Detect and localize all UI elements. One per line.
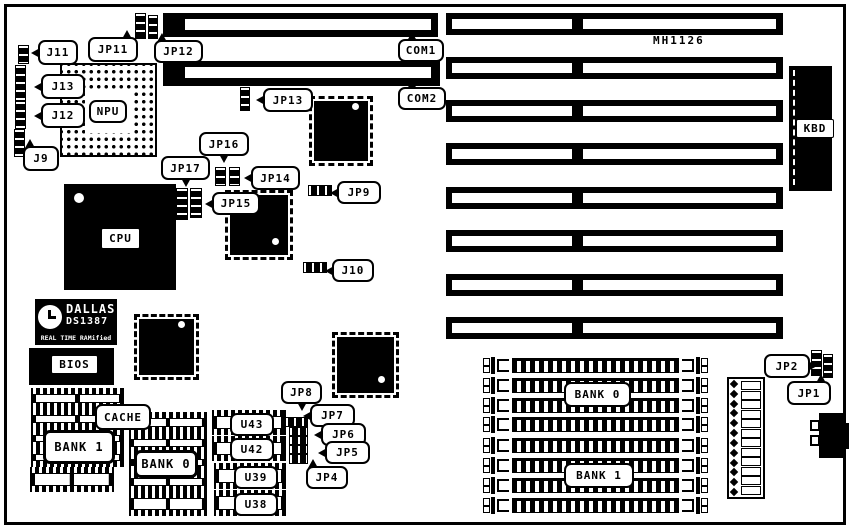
isa-slot-opening [583,19,776,29]
callout-pointer [314,430,323,440]
power-pin [730,409,738,417]
isa-slot-opening [452,280,572,290]
simm-post [491,437,495,454]
callout-jp9: JP9 [337,181,381,204]
rtc-subtitle: REAL TIME RAMified [35,330,117,345]
kbd-connector-edge [793,70,795,185]
jp13-header [240,87,250,111]
com2-slot-opening [185,67,431,78]
dip-bodies [134,440,202,446]
bank0-dip-label-text: BANK 0 [141,457,190,471]
dip-pins [131,433,205,439]
simm-tab [701,486,708,494]
callout-j13-label: J13 [52,80,75,93]
simm-tab [701,498,708,506]
simm-tabs [483,477,490,494]
simm-contacts [512,438,679,453]
u42-label-text: U42 [241,443,264,456]
bank0-simm-label: BANK 0 [564,382,631,407]
simm-tab [701,358,708,366]
u38-label: U38 [234,493,278,516]
simm-post [696,437,700,454]
simm-tab [701,406,708,414]
cpu-pin1-dot [74,193,84,203]
simm-contacts [512,417,679,432]
callout-pointer [808,361,817,371]
power-pin [730,458,738,466]
isa-slot-4 [446,143,783,165]
jp15-header [190,188,202,218]
callout-pointer [256,95,265,105]
power-pin [730,478,738,486]
simm-clip [682,379,694,392]
power-socket [741,410,761,419]
isa-slot-opening [452,19,572,29]
power-socket [741,438,761,447]
simm-clip [682,459,694,472]
simm-clip [497,499,509,512]
callout-j12: J12 [41,103,85,128]
callout-j13: J13 [41,74,85,99]
callout-j11-label: J11 [47,46,70,59]
power-pin [730,399,738,407]
bank0-simm-label-text: BANK 0 [575,388,621,401]
callout-jp7-label: JP7 [321,409,344,422]
isa-slot-3 [446,100,783,122]
callout-pointer [325,266,334,276]
rtc-part-number: DS1387 [66,317,115,327]
isa-slot-opening [583,280,776,290]
j13-header [15,65,26,101]
isa-slot-opening [452,149,572,159]
callout-jp8: JP8 [281,381,322,404]
jp4-jumper [289,454,308,464]
isa-slot-opening [452,63,572,73]
callout-jp17: JP17 [161,156,210,180]
simm-clip [497,439,509,452]
simm-tab [483,358,490,366]
simm-tabs [483,397,490,414]
power-socket [741,429,761,438]
dip-pins [32,486,112,492]
simm-socket [483,357,708,374]
isa-slot-1 [446,13,783,35]
isa-slot-6 [446,230,783,252]
qfp-chip [332,332,399,398]
simm-post [491,457,495,474]
simm-clip [497,459,509,472]
callout-jp16: JP16 [199,132,249,156]
simm-clip [682,418,694,431]
cache-label-text: CACHE [104,411,142,424]
callout-pointer [205,199,214,209]
simm-tab [483,406,490,414]
callout-jp17-label: JP17 [170,162,201,175]
u39-label-text: U39 [245,471,268,484]
callout-pointer [34,111,43,121]
rtc-text: DALLAS DS1387 [66,303,115,327]
simm-clip [682,399,694,412]
simm-post [696,416,700,433]
simm-tab [701,478,708,486]
com1-connector [163,13,438,37]
callout-jp6-label: JP6 [332,428,355,441]
bank1-dip-label: BANK 1 [43,430,115,464]
isa-slot-opening [583,106,776,116]
simm-clip [682,439,694,452]
simm-tab [483,398,490,406]
callout-pointer [219,154,229,163]
qfp-pin1-dot [378,376,385,383]
simm-tab [483,486,490,494]
simm-tab [483,478,490,486]
dip-bodies [35,474,109,485]
u43-label-text: U43 [241,418,264,431]
simm-tabs [483,377,490,394]
simm-tab [483,466,490,474]
simm-contacts [512,498,679,513]
isa-slot-opening [583,63,776,73]
dip-row [129,492,207,516]
isa-slot-opening [583,149,776,159]
isa-slot-opening [452,193,572,203]
simm-tabs [483,416,490,433]
power-pin [730,390,738,398]
simm-clip [682,359,694,372]
simm-tabs [701,397,708,414]
simm-tab [701,438,708,446]
callout-jp2-label: JP2 [776,360,799,373]
simm-tabs [483,437,490,454]
simm-post [696,357,700,374]
simm-clip [682,499,694,512]
qfp-chip [309,96,373,166]
simm-clip [497,379,509,392]
edge-power-receptacle [819,413,846,458]
u39-label: U39 [234,466,278,489]
simm-tab [701,506,708,514]
com2-connector [163,61,440,86]
simm-tabs [701,437,708,454]
qfp-chip [134,314,199,380]
callout-com1-label: COM1 [406,44,437,57]
simm-post [696,397,700,414]
callout-jp12-label: JP12 [163,45,194,58]
jp11-header [135,13,146,39]
simm-socket [483,497,708,514]
jp6-jumper [289,436,308,445]
simm-clip [497,359,509,372]
power-pin [730,419,738,427]
qfp-pin1-dot [352,103,359,110]
isa-slot-7 [446,274,783,296]
power-socket [741,476,761,485]
callout-j12-label: J12 [52,109,75,122]
simm-post [491,377,495,394]
j10-header [303,262,327,273]
power-sockets-column [741,381,761,495]
callout-jp5-label: JP5 [336,446,359,459]
callout-jp1: JP1 [787,381,831,405]
simm-tab [483,417,490,425]
power-pin [730,380,738,388]
isa-slot-opening [452,323,572,333]
callout-jp2: JP2 [764,354,810,378]
simm-tab [701,425,708,433]
dip-row [30,467,114,492]
callout-jp8-label: JP8 [290,386,313,399]
callout-pointer [122,30,132,39]
callout-jp15: JP15 [212,192,260,215]
power-socket [741,486,761,495]
callout-pointer [157,33,167,42]
simm-socket [483,416,708,433]
callout-jp15-label: JP15 [221,197,252,210]
power-pin [730,448,738,456]
isa-slot-2 [446,57,783,79]
board-model-text: MH1126 [653,34,705,47]
simm-tabs [701,357,708,374]
callout-pointer [181,178,191,187]
callout-j9-label: J9 [33,152,48,165]
simm-tab [701,378,708,386]
callout-jp14: JP14 [251,166,300,190]
callout-j10-label: J10 [342,264,365,277]
dip-pins [131,510,205,516]
simm-tab [701,446,708,454]
simm-tab [483,366,490,374]
jp7-jumper [289,427,308,436]
power-pin [730,429,738,437]
rtc-brand: DALLAS [66,303,115,315]
power-socket [741,448,761,457]
simm-post [696,377,700,394]
isa-slot-opening [583,193,776,203]
simm-tabs [701,477,708,494]
isa-slot-8 [446,317,783,339]
callout-pointer [816,374,826,383]
simm-tab [701,458,708,466]
power-connector [727,377,765,499]
simm-clip [497,399,509,412]
simm-tab [483,438,490,446]
simm-post [491,477,495,494]
simm-post [491,397,495,414]
simm-tab [701,398,708,406]
jp5-jumper [289,445,308,454]
callout-jp13-label: JP13 [273,94,304,107]
simm-clip [682,479,694,492]
isa-slot-opening [583,323,776,333]
clock-icon [38,305,62,329]
callout-pointer [303,411,312,421]
callout-jp11: JP11 [88,37,138,62]
callout-com1: COM1 [398,39,444,62]
jp17-lower-header [176,188,188,220]
callout-j11: J11 [38,40,78,65]
simm-tabs [701,457,708,474]
callout-pointer [407,32,417,41]
callout-pointer [318,448,327,458]
j11-header [18,45,29,64]
simm-tabs [701,416,708,433]
power-pin [730,488,738,496]
dip-bodies [134,499,202,509]
jp16-header [215,167,226,186]
simm-post [696,457,700,474]
kbd-label: KBD [796,119,834,138]
bank1-simm-label-text: BANK 1 [576,469,622,482]
callout-jp11-label: JP11 [98,43,129,56]
callout-j9: J9 [23,146,59,171]
jp9-header [308,185,332,196]
power-socket [741,381,761,390]
power-pins-column [731,381,739,495]
cpu-label: CPU [101,228,140,249]
simm-tabs [483,457,490,474]
edge-power-tab [810,420,820,431]
dip-bodies [134,479,202,485]
simm-post [696,497,700,514]
qfp-pin1-dot [178,321,185,328]
simm-clip [497,479,509,492]
power-socket [741,457,761,466]
npu-label-text: NPU [97,105,120,118]
npu-label: NPU [89,100,127,123]
simm-tabs [483,497,490,514]
bios-label-text: BIOS [59,358,90,371]
callout-j10: J10 [332,259,374,282]
callout-pointer [407,80,417,89]
jp14-header [229,167,240,186]
power-socket [741,391,761,400]
callout-pointer [330,188,339,198]
isa-slot-5 [446,187,783,209]
simm-post [491,416,495,433]
power-pin [730,468,738,476]
simm-tab [483,425,490,433]
simm-tab [483,378,490,386]
kbd-label-text: KBD [804,122,827,135]
callout-jp1-label: JP1 [798,387,821,400]
callout-jp14-label: JP14 [260,172,291,185]
power-pin [730,439,738,447]
bank1-dip-label-text: BANK 1 [54,440,103,454]
power-socket [741,467,761,476]
u38-label-text: U38 [245,498,268,511]
qfp-pin1-dot [272,238,279,245]
callout-pointer [308,459,318,468]
u42-label: U42 [230,438,274,461]
com1-slot-opening [185,19,431,30]
dip-pins [33,388,122,394]
simm-post [491,497,495,514]
isa-slot-opening [452,106,572,116]
simm-tab [701,366,708,374]
callout-com2: COM2 [398,87,446,110]
isa-slot-opening [452,236,572,246]
simm-tab [483,498,490,506]
u43-label: U43 [230,413,274,436]
simm-tab [701,417,708,425]
bank1-simm-label: BANK 1 [564,463,634,488]
simm-post [696,477,700,494]
j12-header [15,101,26,129]
simm-tab [701,386,708,394]
callout-pointer [34,82,43,92]
simm-tab [483,458,490,466]
callout-com2-label: COM2 [407,92,438,105]
callout-jp9-label: JP9 [348,186,371,199]
callout-jp16-label: JP16 [209,138,240,151]
simm-tab [483,386,490,394]
callout-pointer [244,173,253,183]
bios-label: BIOS [51,355,98,374]
callout-pointer [31,48,40,58]
callout-jp5: JP5 [325,441,370,464]
simm-socket [483,437,708,454]
callout-pointer [25,139,35,148]
cpu-label-text: CPU [109,232,132,245]
simm-tab [483,446,490,454]
simm-tab [483,506,490,514]
simm-tabs [701,377,708,394]
power-socket [741,419,761,428]
simm-tab [701,466,708,474]
simm-tabs [483,357,490,374]
callout-jp4: JP4 [306,466,348,489]
simm-tabs [701,497,708,514]
cache-label: CACHE [95,404,151,430]
simm-post [491,357,495,374]
simm-clip [497,418,509,431]
edge-power-tab [810,435,820,446]
bank0-dip-label: BANK 0 [134,450,198,478]
dip-bodies [36,395,119,402]
callout-jp4-label: JP4 [316,471,339,484]
dip-pins [32,467,112,473]
motherboard-diagram: COM1 COM2 MH1126 KBD NPU J11 JP11 JP [0,0,849,527]
callout-jp12: JP12 [154,40,203,63]
power-socket [741,400,761,409]
simm-contacts [512,358,679,373]
callout-jp13: JP13 [263,88,313,112]
edge-power-receptacle-lip [843,423,849,449]
dip-pins [131,492,205,498]
isa-slot-opening [583,236,776,246]
